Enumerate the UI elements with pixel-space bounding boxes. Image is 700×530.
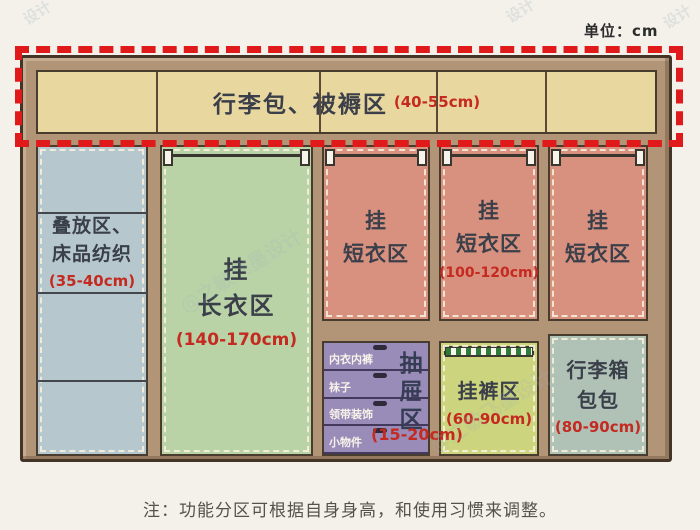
watermark-fragment: 设计 (19, 0, 56, 29)
zone-label: 行李包、被褥区 (213, 85, 388, 119)
shelf-line (36, 292, 148, 294)
hanging-rod (165, 154, 308, 157)
zone-stacking-bedding: 叠放区、 床品纺织 (35-40cm) (36, 145, 148, 456)
drawer-label: 袜子 (329, 379, 351, 395)
zone-label: 挂裤区 (441, 375, 537, 404)
zone-short-coat-hanging-3: 挂 短衣区 (548, 145, 648, 321)
zone-label: 挂 短衣区 (439, 195, 539, 260)
zone-short-coat-hanging-2: 挂 短衣区 (100-120cm) (439, 145, 539, 321)
hanging-rod (327, 154, 425, 157)
drawer-handle-icon (373, 345, 387, 350)
watermark-fragment: 设计 (659, 0, 696, 33)
zone-range: (100-120cm) (439, 265, 539, 281)
zone-label: 抽屉区 (391, 351, 425, 435)
zone-short-coat-hanging-1: 挂 短衣区 (322, 145, 430, 321)
drawer-handle-icon (373, 401, 387, 406)
zone-suitcase-bags: 行李箱 包包 (80-90cm) (548, 334, 648, 456)
hanging-rod (553, 154, 643, 157)
drawer-label: 内衣内裤 (329, 351, 373, 367)
drawer-handle-icon (373, 373, 387, 378)
unit-label: 单位：cm (584, 20, 659, 41)
pants-rack-icon (444, 346, 534, 357)
band-divider (436, 72, 438, 132)
zone-range: (80-90cm) (555, 418, 641, 436)
zone-long-coat-hanging: 挂 长衣区 (140-170cm) (160, 145, 313, 456)
zone-range: (140-170cm) (176, 330, 297, 350)
band-divider (156, 72, 158, 132)
zone-luggage-bedding-top: 行李包、被褥区 (40-55cm) (36, 70, 657, 134)
zone-label: 挂 短衣区 (343, 205, 409, 270)
zone-label: 挂 长衣区 (176, 252, 297, 324)
drawer-label: 小物件 (329, 434, 362, 450)
band-divider (545, 72, 547, 132)
zone-label: 行李箱 包包 (555, 355, 641, 415)
shelf-line (36, 380, 148, 382)
zone-label: 挂 短衣区 (565, 205, 631, 270)
zone-range: (15-20cm) (371, 425, 463, 444)
zone-range: (35-40cm) (38, 272, 146, 290)
drawer-label: 领带装饰 (329, 406, 373, 422)
watermark-fragment: 设计 (502, 0, 539, 27)
zone-label: 叠放区、 床品纺织 (38, 213, 146, 268)
wardrobe-diagram: 设计 设计 设计 @之敏飞墨设计 @之敏飞墨设计 单位：cm 行李包、被褥区 (… (0, 0, 700, 530)
band-divider (319, 72, 321, 132)
note-text: 注：功能分区可根据自身身高，和使用习惯来调整。 (40, 496, 660, 521)
hanging-rod (444, 154, 534, 157)
